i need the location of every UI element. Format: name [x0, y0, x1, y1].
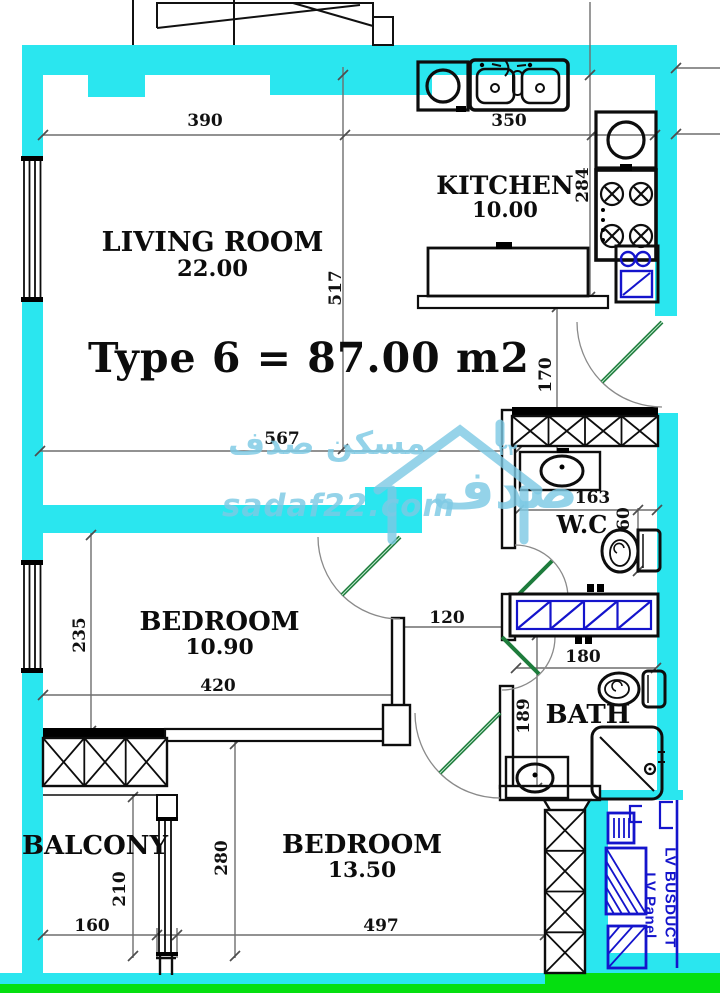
dim-120: 120 [422, 608, 472, 628]
dim-210: 210 [110, 864, 130, 914]
dim-180: 180 [558, 647, 608, 667]
lv-panel-label: LV Panel [642, 863, 659, 949]
floor-plan: LIVING ROOM 22.00 KITCHEN 10.00 BEDROOM … [0, 0, 720, 993]
bedroom2-label: BEDROOM 13.50 [278, 831, 446, 883]
living-room-name: LIVING ROOM [102, 227, 324, 258]
bedroom1-label: BEDROOM 10.90 [127, 608, 312, 660]
dim-284: 284 [573, 160, 593, 210]
dim-420: 420 [193, 676, 243, 696]
dim-390: 390 [180, 111, 230, 131]
dim-497: 497 [356, 916, 406, 936]
bedroom2-area: 13.50 [278, 859, 446, 883]
bath-label: BATH [543, 701, 633, 729]
dim-160: 160 [67, 916, 117, 936]
dim-170: 170 [536, 350, 556, 400]
balcony-label: BALCONY [22, 832, 160, 860]
dim-280: 280 [212, 833, 232, 883]
lv-busduct-label: LV BUSDUCT [662, 832, 679, 964]
dim-60: 60 [614, 494, 634, 544]
dimension-lines [40, 2, 720, 958]
roof-structure [133, 0, 393, 45]
kitchen-area: 10.00 [430, 199, 580, 222]
dim-567: 567 [247, 429, 317, 449]
kitchen-name: KITCHEN [436, 171, 573, 200]
living-room-label: LIVING ROOM 22.00 [100, 228, 325, 282]
bedroom1-name: BEDROOM [139, 607, 299, 637]
wc-label: W.C [550, 512, 614, 538]
bedroom1-area: 10.90 [127, 636, 312, 660]
dim-517: 517 [326, 263, 346, 313]
living-room-area: 22.00 [100, 257, 325, 282]
kitchen-label: KITCHEN 10.00 [430, 172, 580, 222]
bedroom2-name: BEDROOM [282, 830, 442, 860]
dim-235: 235 [70, 610, 90, 660]
dim-189: 189 [514, 691, 534, 741]
dim-163: 163 [565, 488, 620, 508]
plan-title: Type 6 = 87.00 m2 [88, 336, 516, 380]
dim-350: 350 [481, 111, 537, 131]
